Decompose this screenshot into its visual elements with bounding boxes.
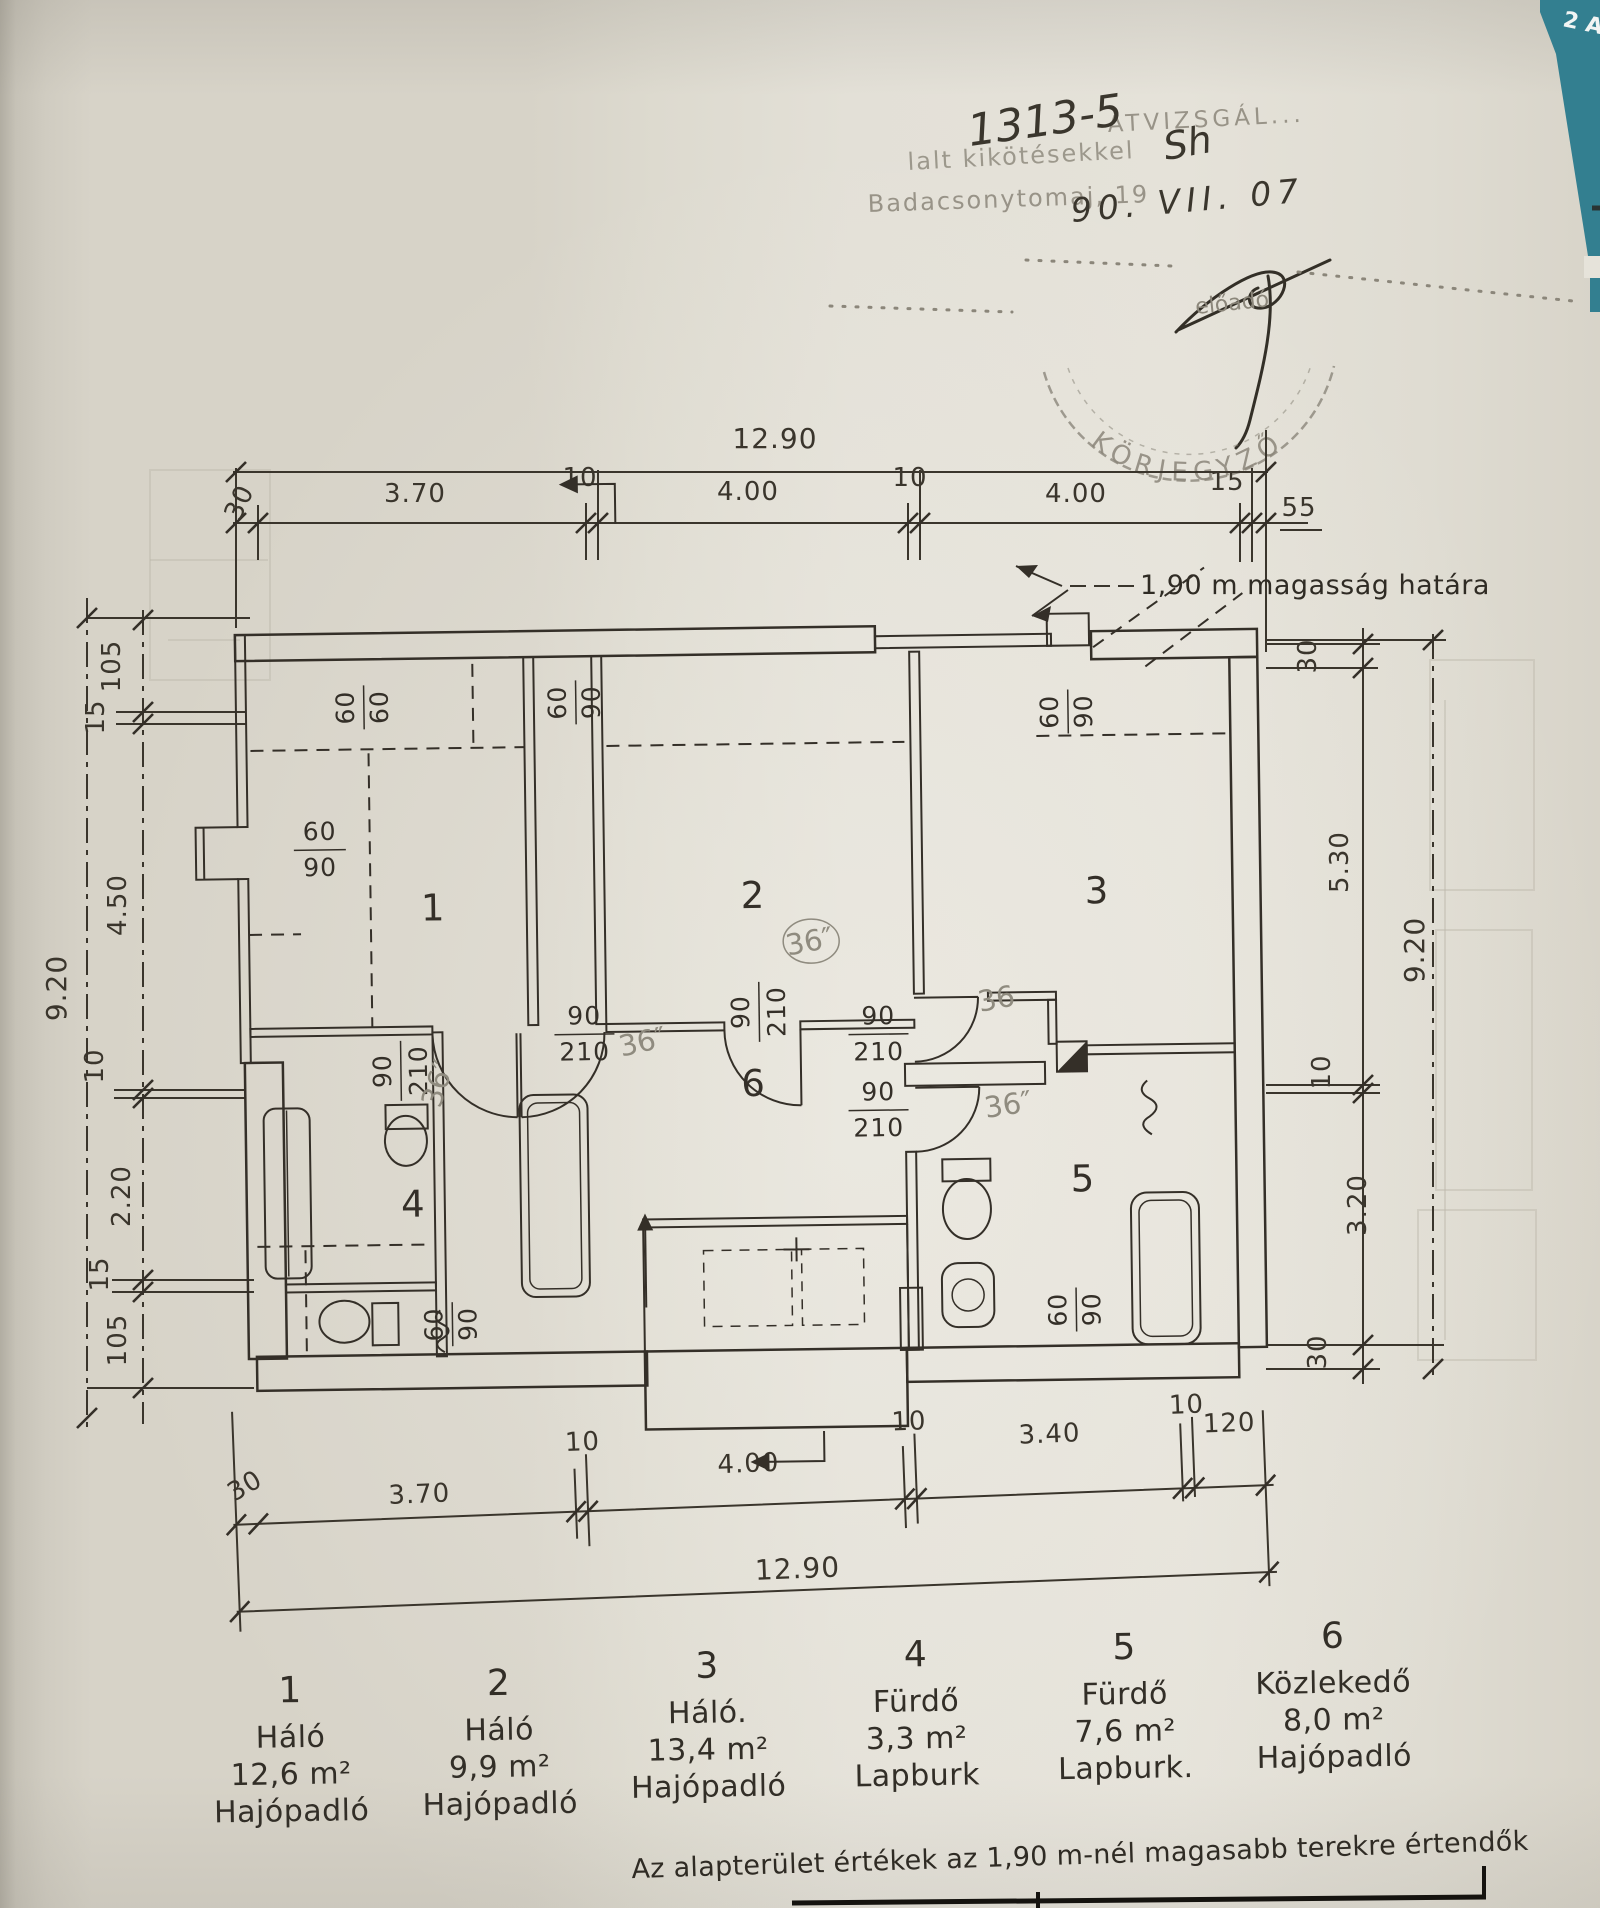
dim-left-part1: 15: [81, 699, 111, 734]
door-label-room3: 90 210: [848, 1001, 909, 1067]
window-label-60-90-left: 60 90: [293, 817, 346, 883]
floor-plan-body: 1 2 3 4 5 6 60 90 60 60 60 90: [191, 466, 1269, 1479]
svg-text:90: 90: [861, 1077, 895, 1106]
door-label-bath5: 90 210: [848, 1077, 909, 1143]
dim-left-overall: 9.20: [40, 955, 73, 1021]
legend-room-area: 13,4 m²: [604, 1730, 813, 1770]
svg-text:210: 210: [559, 1037, 610, 1067]
legend-room-area: 9,9 m²: [395, 1747, 604, 1787]
dim-bottom-seg2: 4.00: [717, 1448, 780, 1480]
scanned-floor-plan-page: ÁTVIZSGÁL... 1313-5 Sh lalt kikötésekkel…: [0, 0, 1600, 1908]
radiator-room5: [1142, 1080, 1157, 1134]
legend-item: 5 Fürdő 7,6 m² Lapburk.: [1019, 1625, 1231, 1818]
dim-bottom-part1: 10: [564, 1427, 600, 1458]
door-width-note-room3: 36: [975, 979, 1018, 1019]
window-label-60-90-room5: 60 90: [1043, 1287, 1107, 1332]
staircase: [637, 1210, 911, 1473]
legend-room-number: 5: [1019, 1625, 1228, 1669]
svg-text:210: 210: [853, 1037, 904, 1067]
room-numbers: 1 2 3 4 5 6: [397, 869, 1113, 1226]
dim-right-seg1: 5.30: [1325, 831, 1355, 893]
legend-room-name: Háló: [395, 1710, 604, 1750]
legend-room-name: Fürdő: [811, 1682, 1020, 1722]
svg-text:90: 90: [861, 1001, 895, 1030]
svg-text:90: 90: [577, 685, 606, 719]
svg-text:90: 90: [1077, 1292, 1106, 1326]
dim-bottom-seg1: 3.70: [388, 1479, 451, 1511]
svg-text:60: 60: [302, 817, 336, 846]
dim-top-part2: 10: [892, 463, 927, 493]
window-label-60-90-room2: 60 90: [543, 680, 607, 725]
svg-text:210: 210: [853, 1113, 904, 1143]
legend-room-name: Közlekedő: [1229, 1663, 1438, 1703]
dim-right-overall: 9.20: [1398, 917, 1431, 983]
dim-top-seg2: 4.00: [717, 477, 779, 507]
dim-bottom-wall: 30: [222, 1465, 267, 1509]
legend-room-name: Fürdő: [1020, 1674, 1229, 1714]
svg-text:60: 60: [365, 690, 394, 724]
dim-left-seg1: 105: [97, 640, 127, 693]
scan-bleedthrough-ghosts: [150, 470, 1536, 1360]
legend-room-name: Háló.: [603, 1693, 812, 1733]
svg-text:90: 90: [453, 1307, 482, 1341]
stamp-document-suffix: Sh: [1160, 117, 1215, 169]
dim-left-part3: 15: [85, 1256, 115, 1291]
legend-item: 3 Háló. 13,4 m² Hajópadló: [602, 1644, 813, 1825]
svg-text:90: 90: [368, 1054, 397, 1088]
legend-room-number: 3: [602, 1644, 811, 1688]
bottom-dimension-chain: 30 3.70 10 4.00 10 3.40 10 120 12.90: [220, 1372, 1280, 1632]
room-number-4: 4: [401, 1183, 425, 1226]
dim-right-part: 10: [1307, 1054, 1337, 1089]
dim-top-seg3: 4.00: [1045, 479, 1107, 509]
window-label-60-90-room3: 60 90: [1035, 689, 1099, 734]
room-number-1: 1: [421, 886, 445, 929]
svg-text:60: 60: [1043, 1293, 1072, 1327]
legend-item: 2 Háló 9,9 m² Hajópadló: [394, 1661, 605, 1828]
dim-left-part2: 10: [80, 1048, 110, 1083]
folder-corner: 2 A: [1540, 0, 1600, 312]
basin-room5: [942, 1263, 995, 1328]
stamp-conditions-line: lalt kikötésekkel: [907, 136, 1135, 176]
legend-room-number: 2: [394, 1661, 603, 1705]
legend-room-area: 3,3 m²: [812, 1719, 1021, 1759]
legend-room-floor: Lapburk.: [1021, 1748, 1230, 1788]
legend-room-area: 7,6 m²: [1021, 1711, 1230, 1751]
dim-top-part3: 15: [1209, 467, 1244, 497]
height-boundary-label: 1,90 m magasság határa: [1140, 570, 1490, 601]
window-label-60-60-top: 60 60: [331, 685, 395, 730]
stair-up-arrow: [637, 1213, 653, 1230]
legend-room-name: Háló: [186, 1718, 395, 1758]
svg-text:90: 90: [303, 853, 337, 882]
left-window: [196, 827, 239, 880]
left-dimension-chain: 105 15 4.50 10 2.20 15 105 9.20: [40, 598, 254, 1432]
door-size-labels: 90 210 36″ 90 210 36″ 90 210 90 210 36: [366, 916, 1035, 1149]
legend-room-floor: Lapburk: [813, 1756, 1022, 1796]
dim-bottom-seg3: 3.40: [1018, 1418, 1081, 1450]
legend-room-floor: Hajópadló: [396, 1784, 605, 1824]
legend-room-number: 4: [811, 1633, 1020, 1677]
height-boundary-dashed-lines: [244, 567, 1253, 1355]
dim-top-wall: 30: [219, 480, 261, 524]
dim-top-eave: 55: [1281, 493, 1316, 523]
legend-room-floor: Hajópadló: [187, 1792, 396, 1832]
dim-left-seg3: 2.20: [107, 1165, 137, 1227]
door-width-note-bath5: 36″: [982, 1084, 1035, 1125]
door-bath5: [915, 1087, 980, 1152]
dim-top-seg1: 3.70: [384, 479, 446, 509]
svg-text:210: 210: [762, 986, 792, 1037]
dim-bottom-terrace: 120: [1202, 1408, 1256, 1440]
approval-stamp-block: ÁTVIZSGÁL... 1313-5 Sh lalt kikötésekkel…: [830, 85, 1582, 488]
toilet-room4: [385, 1116, 428, 1167]
dim-right-wall-top: 30: [1293, 638, 1323, 673]
legend-item: 6 Közlekedő 8,0 m² Hajópadló: [1228, 1614, 1440, 1815]
folder-corner-shape: [1540, 0, 1600, 256]
dim-left-seg4: 105: [103, 1314, 133, 1367]
svg-text:90: 90: [567, 1001, 601, 1030]
clerk-label: előadó: [1194, 287, 1270, 320]
dim-left-seg2: 4.50: [103, 874, 133, 936]
room-number-2: 2: [740, 874, 764, 917]
toilet-wc: [319, 1300, 370, 1343]
dim-bottom-overall: 12.90: [754, 1551, 840, 1587]
room-number-6: 6: [741, 1062, 765, 1105]
legend-room-floor: Hajópadló: [604, 1767, 813, 1807]
svg-text:60: 60: [1035, 695, 1064, 729]
room-number-3: 3: [1084, 869, 1108, 912]
door-width-note-bath4: 36″: [615, 1020, 669, 1064]
legend-room-floor: Hajópadló: [1230, 1737, 1439, 1777]
svg-text:90: 90: [726, 995, 755, 1029]
legend-room-area: 12,6 m²: [187, 1755, 396, 1795]
window-label-60-90-wc: 60 90: [419, 1302, 483, 1347]
chimney: [1047, 613, 1089, 646]
dim-bottom-part3: 10: [1168, 1390, 1204, 1421]
toilet-room5: [943, 1179, 992, 1240]
legend-room-number: 1: [185, 1669, 394, 1713]
svg-text:90: 90: [1069, 694, 1098, 728]
dim-right-wall-bottom: 30: [1303, 1334, 1333, 1369]
svg-text:60: 60: [331, 691, 360, 725]
legend-item: 4 Fürdő 3,3 m² Lapburk: [811, 1633, 1023, 1822]
door-label-room2: 90 210: [726, 981, 792, 1042]
legend-item: 1 Háló 12,6 m² Hajópadló: [185, 1669, 396, 1832]
svg-text:60: 60: [543, 686, 572, 720]
dim-top-overall: 12.90: [732, 422, 817, 455]
legend-room-number: 6: [1228, 1614, 1437, 1658]
dim-right-seg2: 3.20: [1343, 1174, 1373, 1236]
room-legend: 1 Háló 12,6 m² Hajópadló 2 Háló 9,9 m² H…: [184, 1608, 1439, 1832]
svg-text:60: 60: [419, 1307, 448, 1341]
room-number-5: 5: [1070, 1157, 1094, 1200]
door-room3: [914, 997, 979, 1062]
legend-room-area: 8,0 m²: [1229, 1700, 1438, 1740]
stamp-handwritten-date: 90. VII. 07: [1069, 171, 1305, 230]
